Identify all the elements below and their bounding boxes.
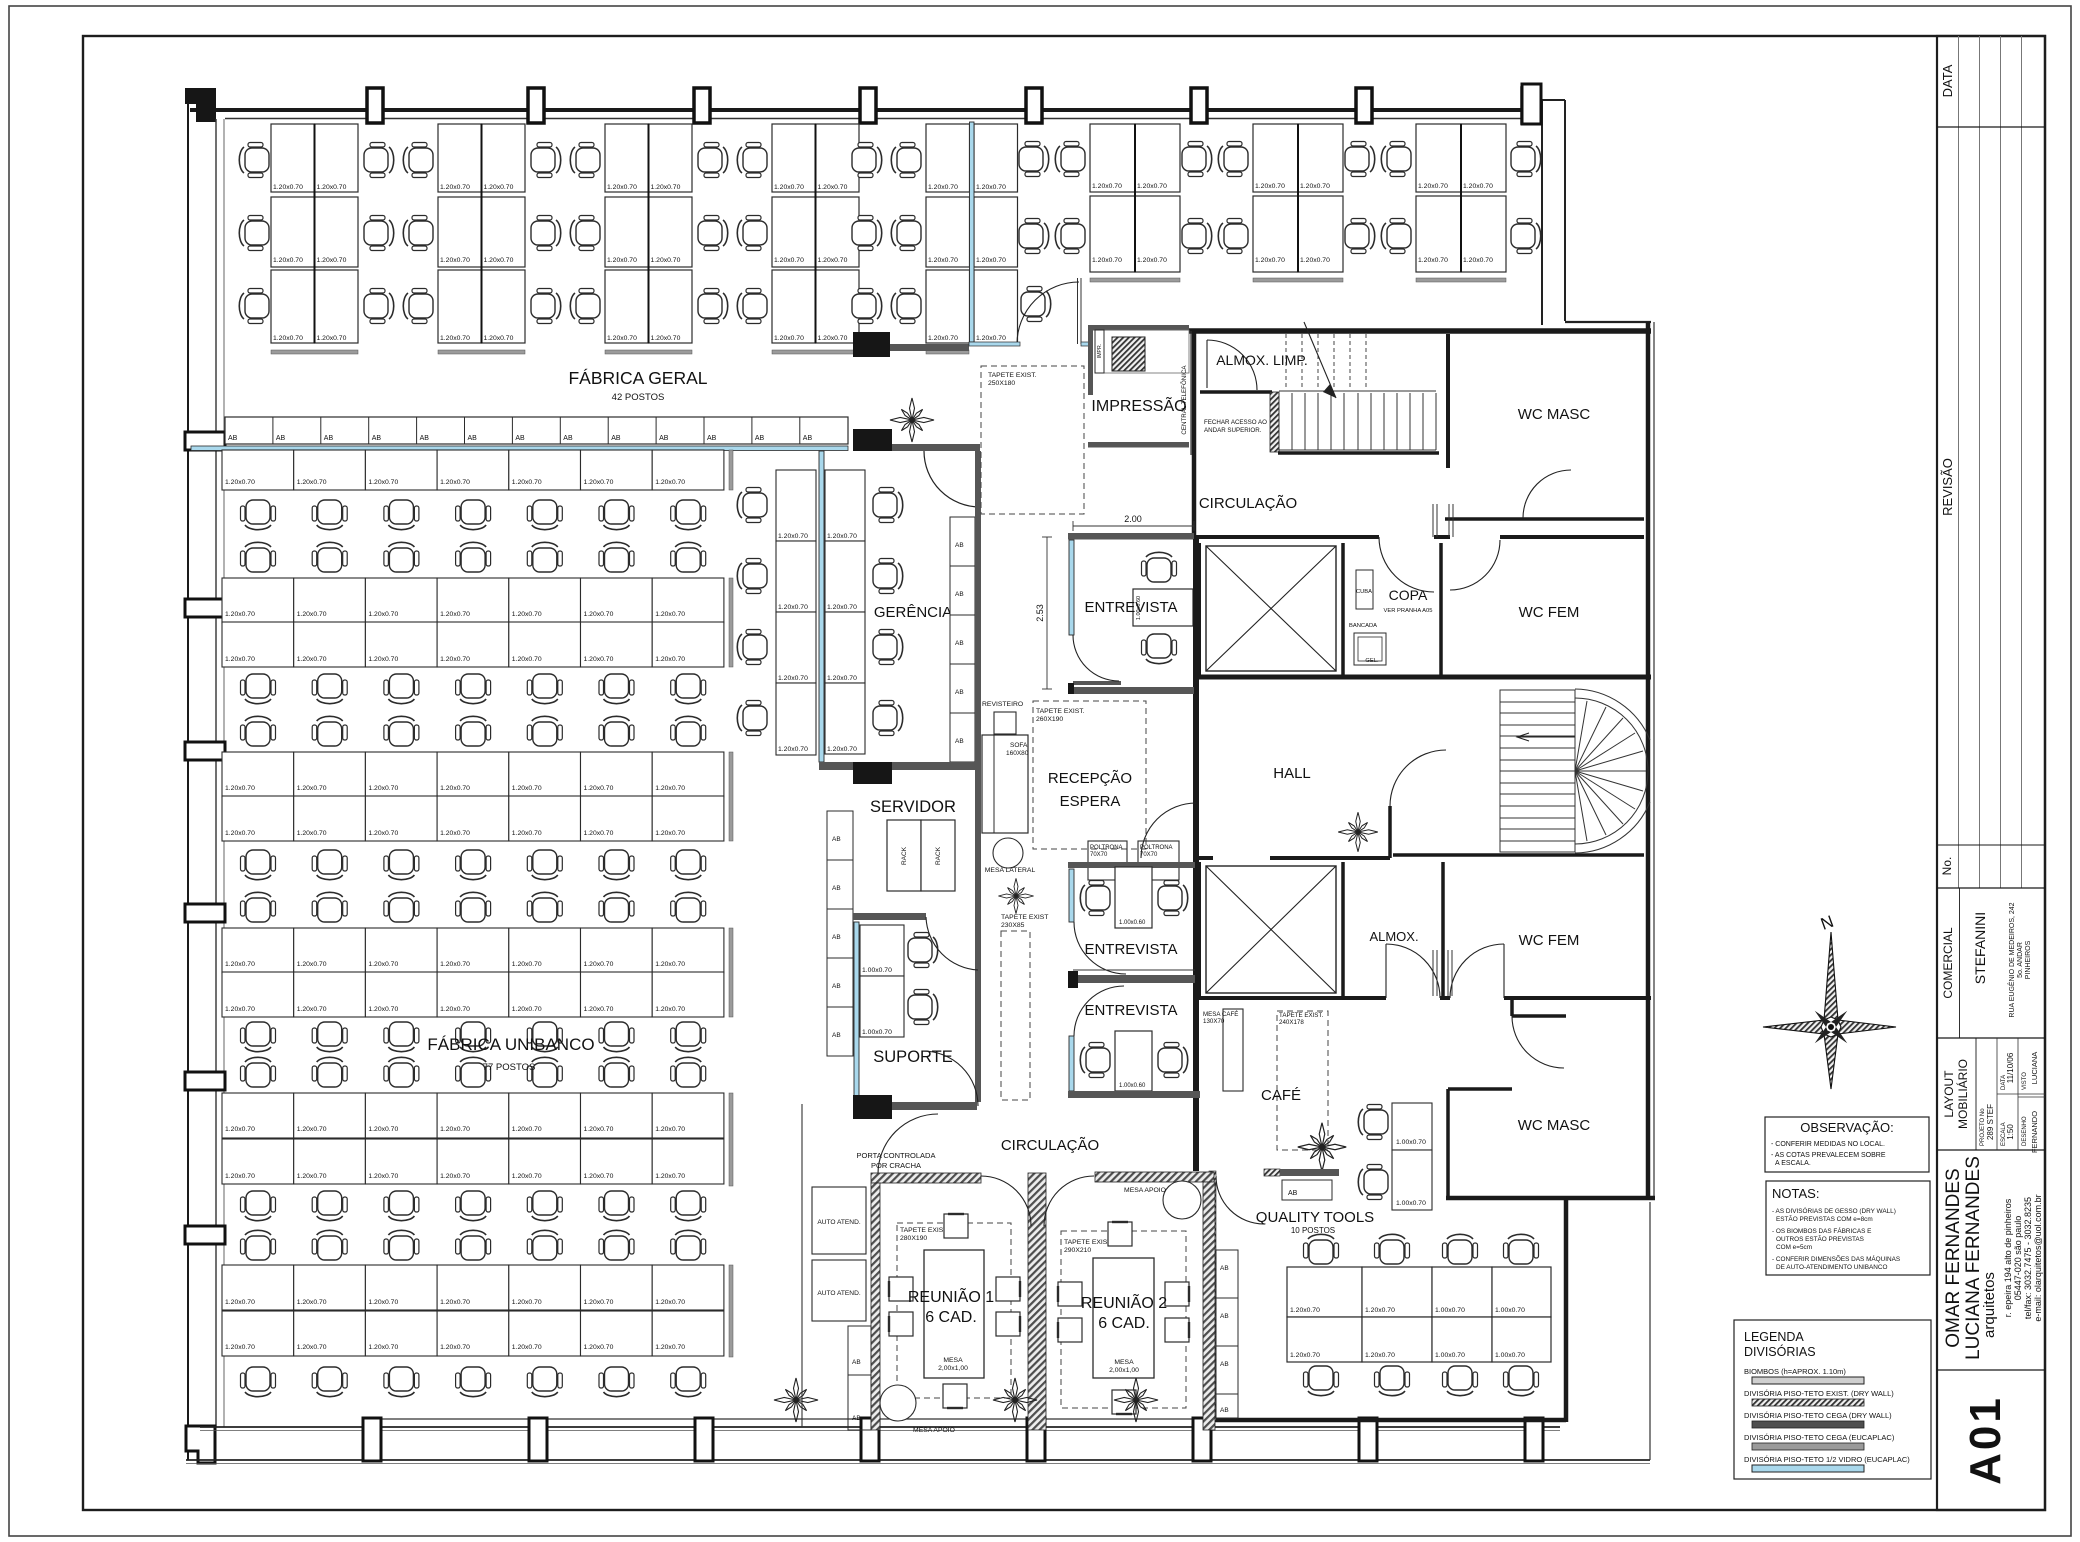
svg-text:AB: AB [515,435,525,442]
svg-text:AB: AB [832,836,841,843]
svg-text:TAPETE EXIST.: TAPETE EXIST. [1064,1239,1113,1246]
svg-text:ESPERA: ESPERA [1060,793,1121,810]
svg-text:1.20x0.70: 1.20x0.70 [225,961,255,968]
svg-text:1.20x0.70: 1.20x0.70 [584,611,614,618]
svg-text:1.20x0.70: 1.20x0.70 [655,830,685,837]
svg-text:1.20x0.70: 1.20x0.70 [976,257,1006,264]
svg-text:IMPRESSÃO: IMPRESSÃO [1091,395,1186,415]
svg-text:1.20x0.70: 1.20x0.70 [976,335,1006,342]
svg-text:QUALITY TOOLS: QUALITY TOOLS [1256,1209,1374,1226]
svg-text:GEL.: GEL. [1365,658,1379,664]
svg-text:1.20x0.70: 1.20x0.70 [440,1006,470,1013]
svg-text:WC FEM: WC FEM [1519,932,1580,949]
svg-text:1.20x0.70: 1.20x0.70 [440,830,470,837]
svg-text:1.20x0.70: 1.20x0.70 [440,785,470,792]
svg-text:FERNANDO: FERNANDO [2030,1111,2039,1153]
svg-text:1.20x0.70: 1.20x0.70 [655,1344,685,1351]
svg-text:1.20x0.70: 1.20x0.70 [584,961,614,968]
svg-text:1.20x0.70: 1.20x0.70 [440,1299,470,1306]
svg-text:1.20x0.70: 1.20x0.70 [297,611,327,618]
svg-text:e-mail: olarquitetos@uol.com.b: e-mail: olarquitetos@uol.com.br [2033,1194,2043,1321]
svg-text:1.20x0.70: 1.20x0.70 [317,335,347,342]
svg-text:1.00x0.70: 1.00x0.70 [1495,1307,1525,1314]
svg-text:1.20x0.70: 1.20x0.70 [440,479,470,486]
svg-text:BANCADA: BANCADA [1349,623,1377,629]
svg-text:1.20x0.70: 1.20x0.70 [440,611,470,618]
svg-text:arquitetos: arquitetos [1981,1272,1998,1338]
svg-text:1.20x0.70: 1.20x0.70 [655,1299,685,1306]
svg-text:1.20x0.70: 1.20x0.70 [512,1006,542,1013]
svg-text:1.20x0.70: 1.20x0.70 [297,1006,327,1013]
svg-text:1.20x0.70: 1.20x0.70 [1418,257,1448,264]
svg-text:REUNIÃO 2: REUNIÃO 2 [1081,1292,1167,1312]
svg-text:RECEPÇÃO: RECEPÇÃO [1048,770,1132,787]
svg-text:DIVISÓRIA PISO-TETO EXIST. (DR: DIVISÓRIA PISO-TETO EXIST. (DRY WALL) [1744,1389,1894,1398]
svg-text:ENTREVISTA: ENTREVISTA [1084,941,1177,958]
svg-text:- CONFERIR DIMENSÕES DAS MÁQUI: - CONFERIR DIMENSÕES DAS MÁQUINAS [1772,1254,1900,1263]
svg-text:- OS BIOMBOS DAS FÁBRICAS E: - OS BIOMBOS DAS FÁBRICAS E [1772,1226,1871,1235]
svg-text:1.20x0.70: 1.20x0.70 [273,257,303,264]
svg-text:POLTRONA: POLTRONA [1140,845,1173,851]
svg-text:1.20x0.70: 1.20x0.70 [225,1173,255,1180]
svg-text:1.20x0.70: 1.20x0.70 [317,257,347,264]
svg-text:1.20x0.70: 1.20x0.70 [584,479,614,486]
svg-text:1.20x0.70: 1.20x0.70 [440,961,470,968]
svg-text:AB: AB [228,435,238,442]
svg-text:AB: AB [1288,1190,1298,1197]
svg-text:1.20x0.70: 1.20x0.70 [778,533,808,540]
svg-text:FÁBRICA GERAL: FÁBRICA GERAL [568,368,707,388]
svg-text:REUNIÃO 1: REUNIÃO 1 [908,1286,994,1306]
svg-text:AB: AB [832,934,841,941]
svg-text:1.20x0.70: 1.20x0.70 [774,257,804,264]
svg-text:05447-020 são paulo: 05447-020 são paulo [2013,1216,2023,1301]
svg-text:130X70: 130X70 [1203,1018,1225,1025]
svg-text:10 POSTOS: 10 POSTOS [1291,1226,1335,1235]
svg-text:1.20x0.70: 1.20x0.70 [827,746,857,753]
svg-text:1.20x0.70: 1.20x0.70 [368,1006,398,1013]
svg-text:1.20x0.70: 1.20x0.70 [273,184,303,191]
svg-text:1.20x0.70: 1.20x0.70 [440,656,470,663]
svg-text:BIOMBOS (h=APROX. 1.10m): BIOMBOS (h=APROX. 1.10m) [1744,1367,1846,1376]
svg-text:1.20x0.70: 1.20x0.70 [584,785,614,792]
svg-text:ENTREVISTA: ENTREVISTA [1084,1002,1177,1019]
svg-text:FECHAR ACESSO AO: FECHAR ACESSO AO [1204,419,1267,426]
svg-text:CAFÉ: CAFÉ [1261,1087,1301,1104]
svg-text:1.20x0.70: 1.20x0.70 [928,184,958,191]
svg-text:AB: AB [955,689,964,696]
svg-text:230X85: 230X85 [1001,922,1025,929]
svg-text:DESENHO: DESENHO [2022,1116,2028,1146]
svg-text:1.20x0.70: 1.20x0.70 [297,656,327,663]
svg-text:1.20x0.70: 1.20x0.70 [584,1299,614,1306]
svg-text:1.20x0.70: 1.20x0.70 [1463,257,1493,264]
svg-text:MESA: MESA [1114,1359,1134,1366]
svg-text:PINHEIROS: PINHEIROS [2025,940,2032,979]
svg-text:SERVIDOR: SERVIDOR [870,798,956,816]
svg-text:1.20x0.70: 1.20x0.70 [655,479,685,486]
svg-text:1.20x0.70: 1.20x0.70 [818,184,848,191]
svg-text:1.20x0.70: 1.20x0.70 [297,1344,327,1351]
svg-text:1.20x0.70: 1.20x0.70 [440,1344,470,1351]
svg-text:DATA: DATA [1940,64,1955,97]
svg-text:1.20x0.70: 1.20x0.70 [368,785,398,792]
svg-text:AB: AB [659,435,669,442]
svg-text:CUBA: CUBA [1356,589,1372,595]
svg-text:POLTRONA: POLTRONA [1090,845,1123,851]
svg-text:1.20x0.70: 1.20x0.70 [440,184,470,191]
svg-text:AB: AB [1220,1407,1229,1414]
svg-text:TAPETE EXIST.: TAPETE EXIST. [1279,1012,1324,1019]
svg-text:TAPETE EXIST.: TAPETE EXIST. [988,372,1037,379]
svg-text:1.20x0.70: 1.20x0.70 [774,184,804,191]
svg-text:1.20x0.70: 1.20x0.70 [225,1126,255,1133]
svg-text:1.20x0.70: 1.20x0.70 [368,611,398,618]
svg-text:DIVISÓRIA PISO-TETO 1/2 VIDRO: DIVISÓRIA PISO-TETO 1/2 VIDRO (EUCAPLAC) [1744,1455,1910,1464]
svg-text:1.20x0.70: 1.20x0.70 [1365,1307,1395,1314]
svg-text:1.20x0.70: 1.20x0.70 [1300,183,1330,190]
svg-text:1.20x0.70: 1.20x0.70 [225,611,255,618]
svg-text:A01: A01 [1961,1395,2010,1485]
svg-text:COPA: COPA [1389,587,1428,603]
svg-text:1.20x0.70: 1.20x0.70 [651,257,681,264]
svg-text:11/10/06: 11/10/06 [2006,1052,2015,1083]
svg-text:1:50: 1:50 [2006,1124,2015,1140]
svg-text:1.00x0.60: 1.00x0.60 [1119,920,1146,926]
svg-text:1.20x0.70: 1.20x0.70 [368,479,398,486]
svg-text:AB: AB [832,983,841,990]
svg-text:1.20x0.70: 1.20x0.70 [928,335,958,342]
svg-text:COMERCIAL: COMERCIAL [1941,927,1955,999]
svg-text:AB: AB [420,435,430,442]
svg-text:1.20x0.70: 1.20x0.70 [655,961,685,968]
svg-text:1.20x0.70: 1.20x0.70 [225,830,255,837]
svg-text:AB: AB [1220,1313,1229,1320]
svg-text:1.20x0.70: 1.20x0.70 [1255,183,1285,190]
svg-text:AB: AB [755,435,765,442]
svg-text:1.00x0.70: 1.00x0.70 [1396,1139,1426,1146]
svg-text:1.20x0.70: 1.20x0.70 [512,611,542,618]
svg-text:1.20x0.70: 1.20x0.70 [225,785,255,792]
svg-text:AUTO ATEND.: AUTO ATEND. [817,1219,861,1226]
svg-text:1.20x0.70: 1.20x0.70 [1137,257,1167,264]
svg-text:1.20x0.70: 1.20x0.70 [1255,257,1285,264]
svg-text:1.20x0.70: 1.20x0.70 [512,785,542,792]
svg-text:1.00x0.70: 1.00x0.70 [1396,1200,1426,1207]
svg-text:1.20x0.70: 1.20x0.70 [1092,183,1122,190]
svg-text:- CONFERIR MEDIDAS NO LOCAL.: - CONFERIR MEDIDAS NO LOCAL. [1771,1141,1885,1148]
svg-text:ALMOX.: ALMOX. [1369,929,1418,944]
svg-text:1.20x0.70: 1.20x0.70 [512,1126,542,1133]
svg-text:1.20x0.70: 1.20x0.70 [778,604,808,611]
svg-text:1.20x0.70: 1.20x0.70 [655,611,685,618]
svg-text:1.20x0.70: 1.20x0.70 [225,1299,255,1306]
svg-text:1.20x0.70: 1.20x0.70 [778,746,808,753]
svg-text:5o. ANDAR: 5o. ANDAR [2017,942,2024,978]
svg-text:VISTO: VISTO [2022,1072,2028,1090]
svg-text:1.20x0.70: 1.20x0.70 [512,656,542,663]
svg-text:1.20x0.70: 1.20x0.70 [225,656,255,663]
svg-text:1.20x0.70: 1.20x0.70 [297,1173,327,1180]
svg-text:1.20x0.70: 1.20x0.70 [607,257,637,264]
svg-text:1.20x0.70: 1.20x0.70 [512,1344,542,1351]
svg-text:MESA LATERAL: MESA LATERAL [985,867,1036,874]
svg-text:WC MASC: WC MASC [1518,1117,1591,1134]
svg-text:1.20x0.70: 1.20x0.70 [225,1006,255,1013]
svg-text:1.00x0.70: 1.00x0.70 [1435,1307,1465,1314]
svg-text:STEFANINI: STEFANINI [1972,912,1988,984]
svg-text:1.20x0.70: 1.20x0.70 [774,335,804,342]
svg-text:1.20x0.70: 1.20x0.70 [827,675,857,682]
svg-text:1.20x0.70: 1.20x0.70 [655,1126,685,1133]
svg-text:240X178: 240X178 [1279,1019,1304,1026]
svg-text:CIRCULAÇÃO: CIRCULAÇÃO [1199,495,1297,512]
svg-text:1.20x0.70: 1.20x0.70 [484,184,514,191]
svg-text:AB: AB [1220,1361,1229,1368]
svg-text:HALL: HALL [1273,765,1311,782]
svg-text:1.20x0.70: 1.20x0.70 [297,785,327,792]
svg-text:1.20x0.70: 1.20x0.70 [651,184,681,191]
svg-text:DIVISÓRIA PISO-TETO CEGA (DRY: DIVISÓRIA PISO-TETO CEGA (DRY WALL) [1744,1411,1892,1420]
svg-text:DE AUTO-ATENDIMENTO UNIBANCO: DE AUTO-ATENDIMENTO UNIBANCO [1776,1264,1888,1271]
svg-text:AB: AB [324,435,334,442]
svg-text:1.20x0.70: 1.20x0.70 [607,335,637,342]
svg-text:1.20x0.70: 1.20x0.70 [584,1344,614,1351]
svg-text:42 POSTOS: 42 POSTOS [612,392,665,403]
svg-text:160X80: 160X80 [1006,750,1029,757]
svg-text:AB: AB [1220,1265,1229,1272]
svg-text:PORTA CONTROLADA: PORTA CONTROLADA [857,1151,936,1160]
svg-text:1.20x0.70: 1.20x0.70 [584,656,614,663]
svg-text:AB: AB [563,435,573,442]
svg-text:260X190: 260X190 [1036,716,1063,723]
svg-text:1.20x0.70: 1.20x0.70 [1290,1307,1320,1314]
svg-text:AB: AB [803,435,813,442]
svg-text:AB: AB [955,640,964,647]
svg-text:2.00: 2.00 [1124,514,1142,524]
svg-text:AB: AB [955,591,964,598]
svg-text:280X190: 280X190 [900,1235,927,1242]
svg-text:LEGENDA: LEGENDA [1744,1330,1804,1344]
svg-text:1.20x0.70: 1.20x0.70 [584,1006,614,1013]
svg-text:1.20x0.70: 1.20x0.70 [512,479,542,486]
svg-text:OBSERVAÇÃO:: OBSERVAÇÃO: [1800,1120,1893,1135]
svg-text:1.20x0.70: 1.20x0.70 [818,335,848,342]
svg-text:ANDAR SUPERIOR.: ANDAR SUPERIOR. [1204,427,1262,434]
svg-text:1.20x0.70: 1.20x0.70 [368,1299,398,1306]
svg-text:6 CAD.: 6 CAD. [1098,1315,1150,1332]
svg-text:AUTO ATEND.: AUTO ATEND. [817,1290,861,1297]
svg-text:NOTAS:: NOTAS: [1772,1186,1819,1201]
svg-text:1.20x0.70: 1.20x0.70 [225,479,255,486]
svg-text:1.20x0.70: 1.20x0.70 [655,1006,685,1013]
svg-text:AB: AB [852,1359,861,1366]
svg-text:1.20x0.70: 1.20x0.70 [368,1344,398,1351]
svg-text:SOFA: SOFA [1010,742,1028,749]
svg-text:OUTROS ESTÃO PREVISTAS: OUTROS ESTÃO PREVISTAS [1776,1234,1864,1243]
svg-text:No.: No. [1940,857,1954,876]
svg-text:1.20x0.70: 1.20x0.70 [655,1173,685,1180]
svg-text:1.20x0.70: 1.20x0.70 [827,604,857,611]
svg-text:1.20x0.70: 1.20x0.70 [818,257,848,264]
svg-text:1.20x0.70: 1.20x0.70 [297,830,327,837]
svg-text:AB: AB [832,1032,841,1039]
svg-text:MESA CAFÉ: MESA CAFÉ [1203,1011,1238,1018]
svg-text:1.20x0.70: 1.20x0.70 [440,257,470,264]
svg-text:1.20x0.70: 1.20x0.70 [1290,1352,1320,1359]
svg-text:1.20x0.70: 1.20x0.70 [778,675,808,682]
svg-text:MESA: MESA [943,1357,963,1364]
svg-text:1.20x0.70: 1.20x0.70 [512,961,542,968]
svg-text:IMPR.: IMPR. [1097,344,1103,358]
svg-text:1.20x0.70: 1.20x0.70 [1418,183,1448,190]
svg-text:1.20x0.70: 1.20x0.70 [297,961,327,968]
svg-text:MESA APOIO: MESA APOIO [1124,1187,1166,1194]
svg-text:250X180: 250X180 [988,380,1015,387]
svg-text:6 CAD.: 6 CAD. [925,1309,977,1326]
svg-text:- AS COTAS PREVALECEM SOBRE: - AS COTAS PREVALECEM SOBRE [1771,1152,1886,1159]
svg-text:1.20x0.70: 1.20x0.70 [512,830,542,837]
svg-text:OMAR FERNANDES: OMAR FERNANDES [1943,1168,1964,1347]
svg-text:TAPETE EXIST.: TAPETE EXIST. [1036,708,1085,715]
svg-text:70X70: 70X70 [1090,852,1108,858]
svg-text:COM e=5cm: COM e=5cm [1776,1244,1812,1251]
svg-text:1.20x0.70: 1.20x0.70 [368,1173,398,1180]
svg-text:1.20x0.70: 1.20x0.70 [1300,257,1330,264]
svg-text:1.20x0.70: 1.20x0.70 [584,830,614,837]
svg-text:CENTRAL TELEFÔNICA: CENTRAL TELEFÔNICA [1181,365,1188,435]
svg-text:WC FEM: WC FEM [1519,604,1580,621]
svg-text:SUPORTE: SUPORTE [873,1048,952,1066]
svg-text:1.20x0.70: 1.20x0.70 [317,184,347,191]
svg-text:1.00x0.70: 1.00x0.70 [1435,1352,1465,1359]
svg-text:tel/fax: 3032.7475 - 3032.8235: tel/fax: 3032.7475 - 3032.8235 [2023,1197,2033,1319]
svg-text:2.53: 2.53 [1035,604,1045,622]
svg-text:1.20x0.70: 1.20x0.70 [584,1173,614,1180]
svg-text:1.20x0.70: 1.20x0.70 [484,335,514,342]
svg-text:1.20x0.70: 1.20x0.70 [1137,183,1167,190]
svg-text:1.20x0.70: 1.20x0.70 [225,1344,255,1351]
svg-text:DIVISÓRIAS: DIVISÓRIAS [1744,1344,1816,1359]
svg-text:1.20x0.70: 1.20x0.70 [584,1126,614,1133]
svg-text:RACK: RACK [901,846,908,865]
svg-text:r. epeira 194 alto de pinheir: r. epeira 194 alto de pinheiros [2003,1198,2013,1317]
svg-text:GERÊNCIA: GERÊNCIA [874,604,952,621]
svg-text:1.20x0.70: 1.20x0.70 [368,830,398,837]
svg-text:1.20x0.70: 1.20x0.70 [655,656,685,663]
svg-text:RUA EUGÊNIO DE MEDEIROS, 242: RUA EUGÊNIO DE MEDEIROS, 242 [2007,902,2016,1017]
svg-text:AB: AB [372,435,382,442]
svg-text:1.00x0.60: 1.00x0.60 [1119,1083,1146,1089]
svg-text:FÁBRICA UNIBANCO: FÁBRICA UNIBANCO [427,1035,594,1054]
svg-text:1.20x0.70: 1.20x0.70 [273,335,303,342]
svg-text:1.20x0.70: 1.20x0.70 [484,257,514,264]
svg-text:1.20x0.70: 1.20x0.70 [440,1126,470,1133]
svg-text:1.00x0.70: 1.00x0.70 [1495,1352,1525,1359]
svg-text:AB: AB [611,435,621,442]
svg-text:2,00x1,00: 2,00x1,00 [938,1365,968,1372]
svg-text:AB: AB [468,435,478,442]
svg-text:77 POSTOS: 77 POSTOS [483,1062,536,1073]
svg-text:1.00x0.70: 1.00x0.70 [862,967,892,974]
svg-text:AB: AB [955,738,964,745]
svg-text:VER PRANHA A05: VER PRANHA A05 [1384,608,1433,614]
svg-text:REVISÃO: REVISÃO [1940,458,1955,516]
svg-text:ESTÃO PREVISTAS COM e=8cm: ESTÃO PREVISTAS COM e=8cm [1776,1214,1873,1223]
svg-text:LAYOUT: LAYOUT [1942,1070,1956,1118]
svg-text:2,00x1,00: 2,00x1,00 [1109,1367,1139,1374]
svg-text:1.20x0.70: 1.20x0.70 [1365,1352,1395,1359]
svg-text:AB: AB [955,542,964,549]
svg-text:AB: AB [707,435,717,442]
svg-text:1.20x0.70: 1.20x0.70 [827,533,857,540]
svg-text:DIVISÓRIA PISO-TETO CEGA (EUCA: DIVISÓRIA PISO-TETO CEGA (EUCAPLAC) [1744,1433,1895,1442]
svg-text:1.20x0.70: 1.20x0.70 [368,656,398,663]
svg-text:1.00x0.70: 1.00x0.70 [862,1029,892,1036]
svg-text:MESA APOIO: MESA APOIO [913,1427,955,1434]
svg-text:- AS DIVISÓRIAS DE GESSO (DRY: - AS DIVISÓRIAS DE GESSO (DRY WALL) [1772,1206,1896,1215]
svg-text:AB: AB [852,1415,861,1422]
svg-text:1.20x0.70: 1.20x0.70 [297,479,327,486]
svg-text:REVISTEIRO: REVISTEIRO [982,701,1023,708]
svg-text:1.20x0.70: 1.20x0.70 [368,961,398,968]
svg-text:AB: AB [276,435,286,442]
svg-text:1.20x0.70: 1.20x0.70 [655,785,685,792]
svg-text:LUCIANA: LUCIANA [2030,1052,2039,1085]
svg-text:MOBILIÁRIO: MOBILIÁRIO [1955,1059,1970,1129]
svg-text:1.20x0.70: 1.20x0.70 [976,184,1006,191]
svg-text:1.20x0.70: 1.20x0.70 [651,335,681,342]
svg-text:1.20x0.70: 1.20x0.70 [1463,183,1493,190]
svg-text:1.20x0.70: 1.20x0.70 [440,335,470,342]
svg-text:1.20x0.70: 1.20x0.70 [1092,257,1122,264]
svg-text:TAPETE EXIST: TAPETE EXIST [1001,914,1048,921]
svg-text:RACK: RACK [935,846,942,865]
svg-text:1.20x0.70: 1.20x0.70 [607,184,637,191]
svg-text:TAPETE EXIST: TAPETE EXIST [900,1227,947,1234]
svg-text:1.20x0.70: 1.20x0.70 [297,1126,327,1133]
svg-text:WC MASC: WC MASC [1518,406,1591,423]
svg-text:1.20x0.70: 1.20x0.70 [368,1126,398,1133]
svg-text:1.20x0.70: 1.20x0.70 [440,1173,470,1180]
svg-text:AB: AB [832,885,841,892]
svg-text:CIRCULAÇÃO: CIRCULAÇÃO [1001,1137,1099,1154]
svg-text:289 STEF: 289 STEF [1986,1104,1995,1140]
svg-text:ALMOX. LIMP.: ALMOX. LIMP. [1216,352,1308,368]
svg-text:A ESCALA.: A ESCALA. [1775,1160,1811,1167]
svg-text:1.20x0.70: 1.20x0.70 [928,257,958,264]
svg-text:1.20x0.70: 1.20x0.70 [297,1299,327,1306]
svg-text:1.20x0.70: 1.20x0.70 [512,1173,542,1180]
svg-text:70X70: 70X70 [1140,852,1158,858]
svg-text:290X210: 290X210 [1064,1247,1091,1254]
svg-text:1.20x0.70: 1.20x0.70 [512,1299,542,1306]
svg-text:ENTREVISTA: ENTREVISTA [1084,599,1177,616]
